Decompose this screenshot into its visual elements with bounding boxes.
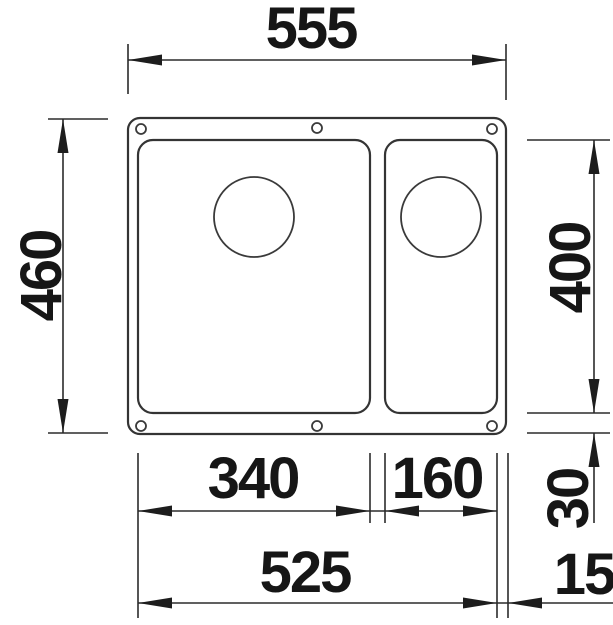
arrowhead-down xyxy=(58,399,69,433)
small-bowl-drain-circle xyxy=(401,177,481,257)
main-bowl-drain-circle xyxy=(214,177,294,257)
main-bowl-outline xyxy=(138,140,370,413)
dim-label-overall-depth: 460 xyxy=(9,231,74,322)
dim-label-bottom-margin: 30 xyxy=(536,469,601,530)
dim-inner-span-and-right-margin: 525 15 xyxy=(138,540,613,609)
arrowhead-up xyxy=(589,433,600,467)
arrowhead-right xyxy=(472,55,506,66)
dim-overall-width: 555 xyxy=(128,0,506,100)
sink-body xyxy=(128,118,506,434)
arrowhead-up xyxy=(589,140,600,174)
technical-drawing-page: 555 460 400 30 xyxy=(0,0,613,625)
arrowhead-525-right xyxy=(463,598,497,609)
sink-dimension-drawing: 555 460 400 30 xyxy=(0,0,613,625)
dim-label-overall-width: 555 xyxy=(266,0,358,61)
sink-outer-outline xyxy=(128,118,506,434)
small-bowl-outline xyxy=(385,140,497,413)
mounting-hole-top-right xyxy=(487,124,497,134)
mounting-hole-top-left xyxy=(136,124,146,134)
arrowhead-up xyxy=(58,119,69,153)
mounting-hole-bottom-left xyxy=(136,421,146,431)
dim-label-inner-span: 525 xyxy=(260,540,352,605)
mounting-hole-bottom-center xyxy=(312,421,322,431)
mounting-hole-bottom-right xyxy=(487,421,497,431)
dim-bowl-depth: 400 xyxy=(527,140,610,413)
arrowhead-525-left xyxy=(138,598,172,609)
dim-label-main-bowl-width: 340 xyxy=(208,446,299,511)
dim-overall-depth: 460 xyxy=(9,119,108,433)
arrowhead-left xyxy=(128,55,162,66)
dim-label-right-margin: 15 xyxy=(554,542,613,607)
arrowhead-down xyxy=(589,379,600,413)
arrowhead-15-left xyxy=(508,598,542,609)
dim-label-bowl-depth: 400 xyxy=(538,223,603,314)
arrowhead-340-right xyxy=(336,506,370,517)
dim-label-small-bowl-width: 160 xyxy=(392,446,483,511)
arrowhead-340-left xyxy=(138,506,172,517)
dim-bottom-margin: 30 xyxy=(527,433,610,529)
mounting-hole-top-center xyxy=(312,123,322,133)
dim-bowl-widths: 340 160 xyxy=(138,446,497,517)
